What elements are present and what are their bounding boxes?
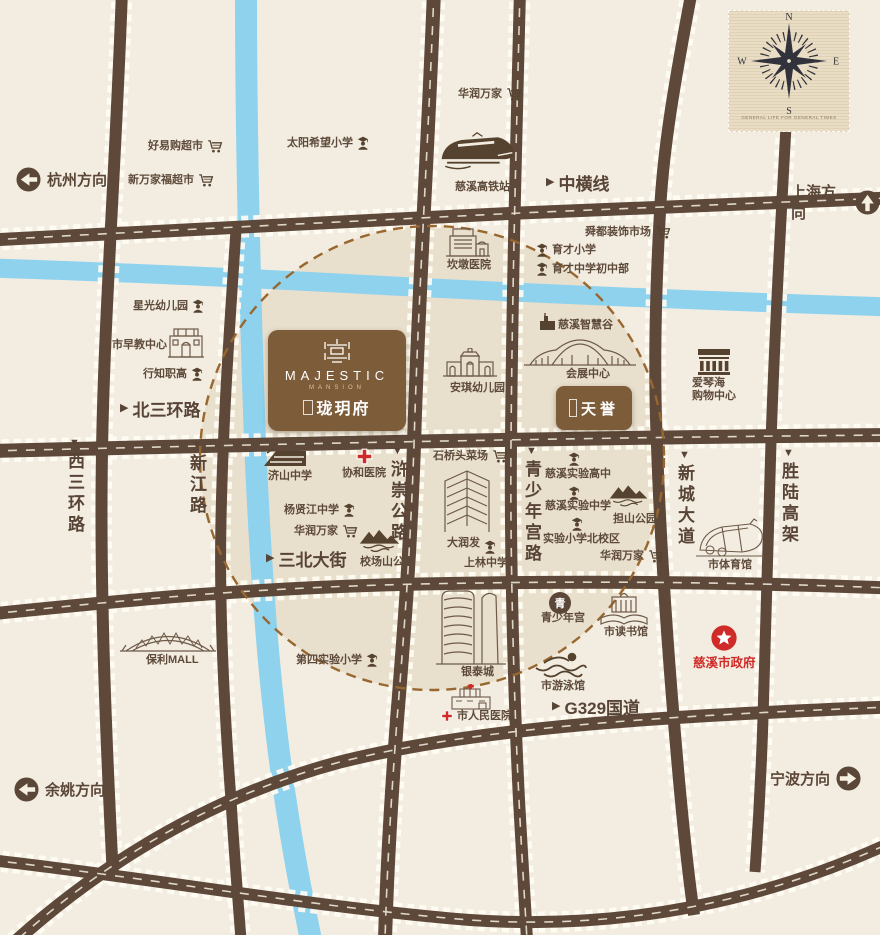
poi-shundu: 舜都装饰市场 bbox=[585, 225, 671, 240]
poi-yangxianjiang: 杨贤江中学 bbox=[284, 503, 355, 517]
building-icon bbox=[166, 323, 206, 359]
poi-renmin: 市人民医院 bbox=[441, 710, 512, 722]
road-label-beisanhuanlu: ▶ 北三环路 bbox=[120, 396, 200, 421]
cart-icon bbox=[207, 139, 223, 154]
poi-xiaochangshan: 校场山公园 bbox=[360, 556, 415, 568]
poi-yucai-xiaoxue: 育才小学 bbox=[536, 243, 596, 257]
poi-huizhan: 会展中心 bbox=[566, 368, 610, 380]
poi-xiehe: 协和医院 bbox=[342, 467, 386, 479]
exhibition-hall-icon bbox=[522, 336, 638, 368]
compass-caption: GENERAL LIFE FOR GENERAL TIMES bbox=[741, 115, 836, 120]
svg-text:S: S bbox=[786, 106, 792, 115]
road-arrow: ▼ bbox=[783, 448, 794, 459]
student-icon bbox=[571, 517, 583, 531]
school-building-icon bbox=[262, 447, 308, 468]
direction-yuyao: 余姚方向 bbox=[14, 777, 105, 802]
road-label-g329: ▶ G329国道 bbox=[552, 694, 640, 719]
poi-xingguang: 星光幼儿园 bbox=[133, 299, 204, 313]
building-icon bbox=[539, 312, 556, 331]
poi-jishan: 济山中学 bbox=[268, 470, 312, 482]
poi-darunfa: 大润发 bbox=[447, 537, 480, 549]
red-cross-icon bbox=[441, 710, 453, 722]
road-arrow: ▼ bbox=[526, 446, 537, 457]
brand-seal bbox=[303, 400, 313, 415]
poi-zhihuigu: 慈溪智慧谷 bbox=[558, 319, 613, 331]
student-icon bbox=[191, 367, 203, 381]
poi-xingzhi: 行知职高 bbox=[143, 367, 203, 381]
arrow-left-circle-icon bbox=[16, 167, 41, 192]
project-card-majestic: MAJESTIC MANSION 珑玥府 bbox=[268, 330, 406, 431]
gov-star-icon bbox=[710, 624, 738, 652]
poi-haoyigou: 好易购超市 bbox=[148, 139, 223, 154]
svg-text:E: E bbox=[833, 57, 839, 68]
poi-huarun-top: 华润万家 bbox=[458, 87, 522, 102]
direction-label: 宁波方向 bbox=[770, 768, 830, 789]
direction-shanghai: 上海方向 bbox=[791, 181, 880, 223]
red-cross-icon bbox=[356, 448, 373, 465]
student-icon bbox=[568, 486, 580, 500]
direction-label: 余姚方向 bbox=[45, 779, 105, 800]
poi-aiqinhai: 爱琴海 购物中心 bbox=[692, 377, 736, 402]
poi-xinwanjiafu: 新万家福超市 bbox=[128, 173, 214, 188]
road-arrow: ▼ bbox=[191, 440, 202, 451]
kindergarten-building-icon bbox=[442, 348, 498, 378]
poi-youyongguan: 市游泳馆 bbox=[541, 680, 585, 692]
brand-seal bbox=[569, 399, 577, 417]
road-label-shengluhaojia: ▼ 胜陆高架 bbox=[776, 448, 801, 546]
poi-danshan: 担山公园 bbox=[613, 513, 657, 525]
road-arrow: ▼ bbox=[392, 446, 403, 457]
tower-building-icon bbox=[438, 466, 496, 534]
poi-huarun-mid: 华润万家 bbox=[294, 524, 358, 539]
road-arrow: ▶ bbox=[120, 403, 128, 414]
arrow-up-circle-icon bbox=[855, 190, 880, 215]
poi-dushuguan: 市读书馆 bbox=[604, 626, 648, 638]
poi-shiyan-gaozhong: 慈溪实验高中 bbox=[545, 468, 611, 480]
cart-icon bbox=[342, 524, 358, 539]
poi-shanglin: 上林中学 bbox=[464, 557, 508, 569]
student-icon bbox=[484, 540, 496, 554]
mall-building-icon bbox=[696, 346, 732, 376]
arrow-right-circle-icon bbox=[836, 766, 861, 791]
road-arrow: ▼ bbox=[679, 450, 690, 461]
svg-text:W: W bbox=[737, 57, 747, 68]
road-label-xisanhuanlu: ▼ 西三环路 bbox=[62, 438, 87, 536]
arrow-left-circle-icon bbox=[14, 777, 39, 802]
poi-baoli: 保利MALL bbox=[146, 654, 199, 666]
svg-text:N: N bbox=[785, 12, 792, 23]
project-card-tianyu: 天誉 bbox=[556, 386, 632, 430]
compass-graphic: N S W E bbox=[736, 11, 842, 115]
student-icon bbox=[192, 299, 204, 313]
poi-yucai-chuzhong: 育才中学初中部 bbox=[536, 262, 629, 276]
road-arrow: ▶ bbox=[552, 701, 560, 712]
brand-emblem-icon bbox=[323, 337, 351, 365]
poi-shiqiaotou: 石桥头菜场 bbox=[433, 449, 508, 464]
competitor-name: 天誉 bbox=[581, 398, 619, 419]
project-name-cn: 珑玥府 bbox=[316, 395, 370, 419]
mountain-park-icon bbox=[358, 528, 402, 552]
road-arrow: ▶ bbox=[266, 553, 274, 564]
poi-zaojiao: 市早教中心 bbox=[112, 339, 167, 351]
stadium-icon bbox=[694, 516, 768, 558]
cart-icon bbox=[506, 87, 522, 102]
cart-icon bbox=[655, 225, 671, 240]
compass-rose: N S W E GENERAL LIFE FOR GENERAL TIMES bbox=[728, 10, 850, 132]
location-map: N S W E GENERAL LIFE FOR GENERAL TIMES 杭… bbox=[0, 0, 880, 935]
project-type-en: MANSION bbox=[309, 385, 365, 391]
road-label-xinjianglu: ▼ 新江路 bbox=[184, 440, 209, 517]
twin-tower-icon bbox=[434, 586, 508, 666]
poi-kandun: 坎墩医院 bbox=[447, 259, 491, 271]
hospital-cross-icon bbox=[448, 684, 494, 712]
cart-icon bbox=[198, 173, 214, 188]
project-name-en: MAJESTIC bbox=[285, 368, 389, 383]
poi-taiyang: 太阳希望小学 bbox=[287, 136, 369, 150]
arch-mall-icon bbox=[118, 622, 218, 654]
poi-disi: 第四实验小学 bbox=[296, 653, 378, 667]
poi-tiyuguan: 市体育馆 bbox=[708, 559, 752, 571]
library-icon bbox=[596, 590, 652, 628]
poi-huarun-right: 华润万家 bbox=[600, 549, 664, 564]
road-label-qingshaoniangonglu: ▼ 青少年宫路 bbox=[519, 446, 544, 565]
poi-qingshaoniangong: 青少年宫 bbox=[541, 612, 585, 624]
student-icon bbox=[343, 503, 355, 517]
poi-anqi: 安琪幼儿园 bbox=[450, 382, 505, 394]
cart-icon bbox=[648, 549, 664, 564]
poi-shiyan-beixiaoqu: 实验小学北校区 bbox=[543, 533, 620, 545]
poi-zhengfu: 慈溪市政府 bbox=[693, 657, 756, 671]
student-icon bbox=[568, 452, 580, 466]
student-icon bbox=[536, 243, 548, 257]
student-icon bbox=[366, 653, 378, 667]
student-icon bbox=[536, 262, 548, 276]
poi-yintai: 银泰城 bbox=[461, 666, 494, 678]
poi-shiyan-zhongxue: 慈溪实验中学 bbox=[545, 500, 611, 512]
direction-ningbo: 宁波方向 bbox=[770, 766, 861, 791]
circle-badge-icon: 青 bbox=[549, 592, 571, 614]
poi-gaotie: 慈溪高铁站 bbox=[455, 181, 510, 193]
swimmer-icon bbox=[532, 650, 590, 678]
direction-label: 上海方向 bbox=[791, 181, 849, 223]
road-label-sanbeidajie: ▶ 三北大街 bbox=[266, 546, 346, 571]
train-icon bbox=[438, 127, 516, 173]
hospital-building-icon bbox=[444, 226, 492, 258]
cart-icon bbox=[492, 449, 508, 464]
mountain-park-icon bbox=[608, 483, 650, 507]
direction-label: 杭州方向 bbox=[47, 169, 107, 190]
student-icon bbox=[357, 136, 369, 150]
direction-hangzhou: 杭州方向 bbox=[16, 167, 107, 192]
road-arrow: ▼ bbox=[69, 438, 80, 449]
road-arrow: ▶ bbox=[546, 177, 554, 188]
road-label-zhonghengxian: ▶ 中横线 bbox=[546, 170, 609, 195]
